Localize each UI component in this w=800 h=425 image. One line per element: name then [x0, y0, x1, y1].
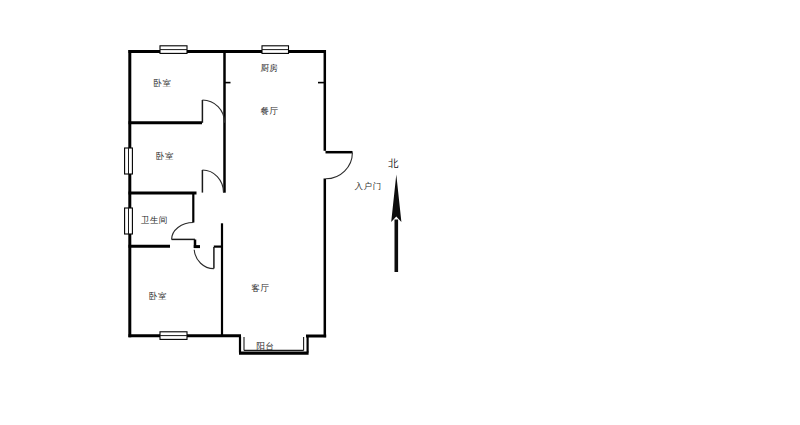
room-labels: 卧室 厨房 餐厅 卧室 卫生间 卧室 客厅 阳台 入户门 北	[141, 63, 399, 351]
label-bedroom-bottom: 卧室	[149, 291, 167, 301]
window-bedroom-top	[160, 46, 187, 54]
north-arrow	[391, 175, 401, 273]
door-entrance	[326, 152, 353, 178]
window-bathroom	[125, 208, 133, 234]
north-arrow-head	[391, 175, 401, 223]
floorplan-page: 卧室 厨房 餐厅 卧室 卫生间 卧室 客厅 阳台 入户门 北	[0, 0, 800, 425]
label-bedroom-top: 卧室	[154, 78, 172, 88]
label-living: 客厅	[252, 283, 270, 293]
label-bathroom: 卫生间	[141, 215, 168, 225]
door-bathroom	[172, 223, 195, 240]
label-entrance-door: 入户门	[355, 181, 382, 191]
label-balcony: 阳台	[257, 341, 275, 351]
north-arrow-shaft	[395, 220, 399, 273]
label-dining: 餐厅	[261, 106, 279, 116]
label-north: 北	[388, 158, 399, 169]
door-bedroom-middle	[202, 170, 223, 193]
floorplan-drawing: 卧室 厨房 餐厅 卧室 卫生间 卧室 客厅 阳台 入户门 北	[0, 0, 800, 425]
window-kitchen	[262, 46, 289, 54]
label-bedroom-middle: 卧室	[156, 151, 174, 161]
window-bedroom-middle	[125, 148, 133, 174]
window-bedroom-bottom	[160, 332, 187, 340]
door-bedroom-bottom	[194, 247, 214, 269]
door-bedroom-top	[202, 100, 224, 123]
label-kitchen: 厨房	[261, 63, 279, 73]
